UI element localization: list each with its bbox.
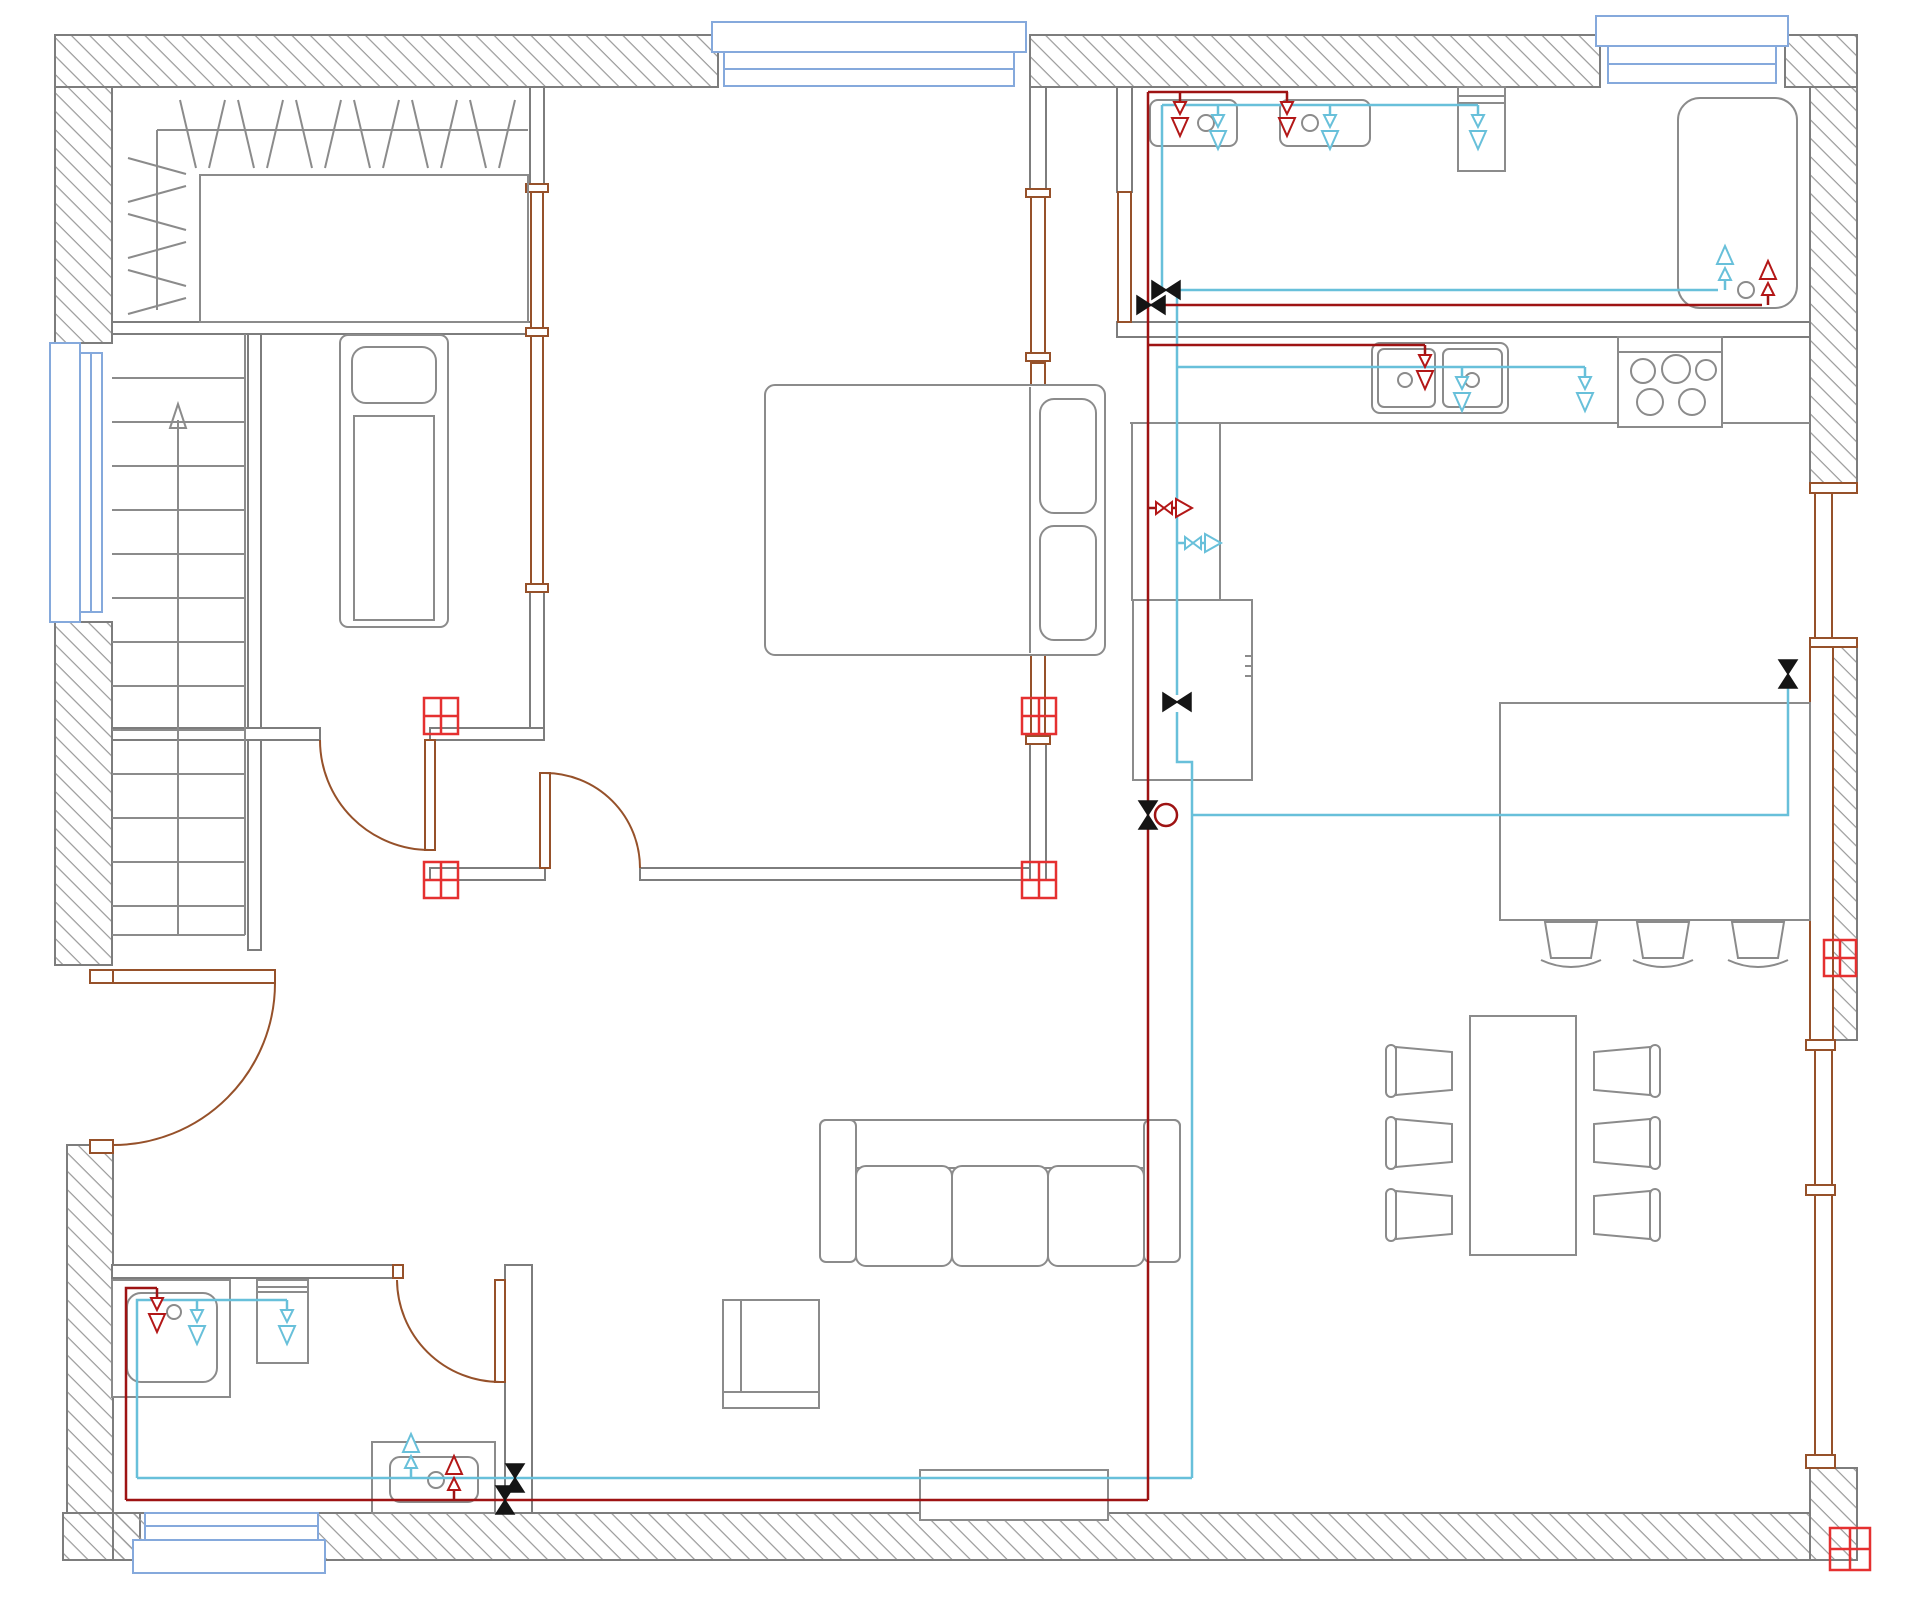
wall-bedroom2-right-bottom: [1030, 740, 1046, 880]
chair-seat: [1396, 1191, 1452, 1239]
double-bed-pillow: [1040, 399, 1096, 513]
sofa-back: [820, 1120, 1180, 1168]
hanger: [354, 100, 370, 168]
layer-branch-fittings: [1156, 499, 1221, 552]
burner: [1631, 359, 1655, 383]
panel-cap: [1806, 1455, 1835, 1468]
cold-heater-link: [1177, 712, 1192, 780]
washbasin-drain: [1198, 115, 1214, 131]
wall-hall-bottom-a: [430, 868, 545, 880]
wall-bathroom1-kitchen-divider: [1117, 322, 1810, 337]
window-left: [50, 343, 80, 622]
panel-cap: [1806, 1040, 1835, 1050]
burner: [1637, 389, 1663, 415]
burner: [1696, 360, 1716, 380]
bathroom2-jamb: [393, 1265, 403, 1278]
right-glass-frame: [1810, 647, 1833, 1040]
outer-wall-top-left: [55, 35, 718, 87]
bedroom2-door-leaf: [540, 773, 550, 868]
outer-wall-top-mid: [1030, 35, 1600, 87]
outer-wall-left-upper: [55, 87, 112, 343]
panel-cap: [1026, 353, 1050, 361]
stool: [1732, 922, 1784, 958]
floor-plan-page: [0, 0, 1920, 1604]
entrance-jamb: [90, 970, 113, 983]
sofa-arm: [820, 1120, 856, 1262]
entrance-jamb: [90, 1140, 113, 1153]
panel-cap: [1806, 1185, 1835, 1195]
panel-bedroom1: [531, 336, 543, 586]
hanger: [383, 100, 399, 168]
layer-water-meter: [1155, 804, 1177, 826]
valve-heater-cold: [1163, 693, 1177, 711]
kitchen-island: [1500, 703, 1810, 920]
washbasin-drain: [1302, 115, 1318, 131]
entrance-door-leaf: [113, 970, 275, 983]
sink-drain: [1398, 373, 1412, 387]
toilet: [1458, 87, 1505, 171]
floor-plan: [0, 0, 1920, 1604]
hanger: [470, 100, 486, 168]
water-meter: [1155, 804, 1177, 826]
outer-wall-right-mid: [1833, 647, 1857, 1040]
bedroom1-door-arc: [320, 740, 430, 850]
panel-cap: [1026, 736, 1050, 744]
armchair-base: [723, 1392, 819, 1408]
stool: [1637, 922, 1689, 958]
burner: [1662, 355, 1690, 383]
panel-closet-room: [531, 190, 543, 330]
window-bottom-sill: [133, 1540, 325, 1573]
right-window-b: [1815, 1050, 1832, 1185]
wall-bedroom1-right: [530, 590, 544, 728]
panel-cap: [1810, 483, 1857, 493]
hanger: [441, 100, 457, 168]
stool-base: [1633, 960, 1693, 967]
chair-back: [1386, 1045, 1396, 1097]
sofa-cushion: [856, 1166, 952, 1266]
hanger: [325, 100, 341, 168]
tap-dishwasher-cold: [1579, 377, 1591, 389]
hanger: [267, 100, 283, 168]
shower-drain: [167, 1305, 181, 1319]
wall-stairs-right: [248, 334, 261, 950]
panel-cap: [526, 328, 548, 336]
panel-cap: [526, 584, 548, 592]
chair-back: [1650, 1189, 1660, 1241]
washbasin-drain: [428, 1472, 444, 1488]
cold-future-branch: [1205, 534, 1221, 552]
panel-cap: [1026, 189, 1050, 197]
valve-heater-cold: [1177, 693, 1191, 711]
outer-wall-left-lower: [67, 1145, 113, 1513]
stool: [1545, 922, 1597, 958]
hot-future-branch: [1176, 499, 1192, 517]
entrance-door-arc: [113, 983, 275, 1145]
wall-bathroom1-left-top: [1117, 87, 1132, 192]
double-bed-pillow: [1040, 526, 1096, 640]
chair-seat: [1594, 1191, 1650, 1239]
outer-wall-right-upper: [1810, 87, 1857, 483]
window-top-1: [712, 22, 1026, 52]
panel-bathroom1: [1118, 192, 1131, 322]
window-top-2: [1596, 16, 1788, 46]
sofa-cushion: [1048, 1166, 1144, 1266]
panel-cap: [1810, 638, 1857, 647]
wall-bathroom2-right: [505, 1265, 532, 1513]
panel-cap: [526, 184, 548, 192]
stool-base: [1728, 960, 1788, 967]
hanger: [296, 100, 312, 168]
outer-wall-left-mid: [55, 622, 112, 965]
outer-wall-top-right: [1785, 35, 1857, 87]
hanger: [499, 100, 515, 168]
stool-base: [1541, 960, 1601, 967]
hanger: [412, 100, 428, 168]
sofa-cushion: [952, 1166, 1048, 1266]
hanger: [209, 100, 225, 168]
valve-island-wall: [1779, 660, 1797, 674]
right-window-a: [1815, 493, 1832, 638]
chair-back: [1650, 1117, 1660, 1169]
water-heater: [1133, 600, 1252, 780]
chair-seat: [1396, 1047, 1452, 1095]
wall-closet-room-right: [530, 87, 544, 190]
wall-bedroom2-right-top: [1030, 87, 1046, 195]
panel-bedroom2-a: [1031, 195, 1045, 355]
single-bed-blanket: [354, 416, 434, 620]
bedroom2-door-arc: [545, 773, 640, 868]
bathtub-drain: [1738, 282, 1754, 298]
chair-back: [1386, 1189, 1396, 1241]
right-window-c: [1815, 1195, 1832, 1455]
burner: [1679, 389, 1705, 415]
valve-cold-bath1: [1166, 281, 1180, 299]
bathroom2-door-arc: [397, 1280, 500, 1382]
chair-back: [1386, 1117, 1396, 1169]
cold-future-branch: [1193, 537, 1201, 549]
dining-table: [1470, 1016, 1576, 1255]
hanger: [180, 100, 196, 168]
hot-future-branch: [1164, 502, 1172, 514]
closet-body: [200, 175, 528, 322]
wall-closet-room-bottom: [112, 322, 535, 334]
layer-furniture: [112, 87, 1810, 1520]
single-bed-pillow: [352, 347, 436, 403]
sofa-arm: [1144, 1120, 1180, 1262]
bathtub: [1678, 98, 1797, 308]
hanger: [238, 100, 254, 168]
bathroom2-door-leaf: [495, 1280, 505, 1382]
chair-seat: [1396, 1119, 1452, 1167]
wall-bedroom2-bottom: [640, 868, 1030, 880]
tap-dishwasher-cold: [1577, 393, 1593, 411]
chair-back: [1650, 1045, 1660, 1097]
valve-island-wall: [1779, 674, 1797, 688]
bedroom1-door-leaf: [425, 740, 435, 850]
chair-seat: [1594, 1119, 1650, 1167]
chair-seat: [1594, 1047, 1650, 1095]
wall-bathroom2-top: [112, 1265, 393, 1278]
